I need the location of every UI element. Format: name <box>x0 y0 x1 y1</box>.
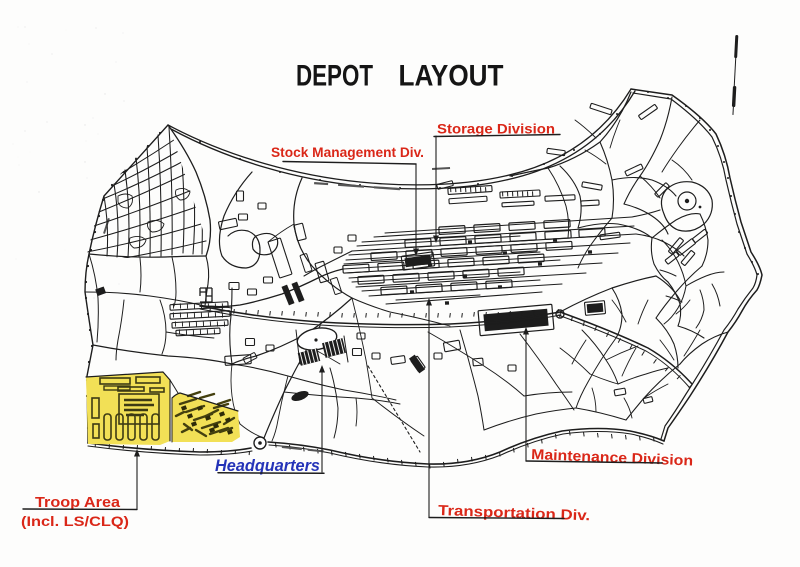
svg-text:(Incl. LS/CLQ): (Incl. LS/CLQ) <box>21 513 129 529</box>
svg-text:Storage Division: Storage Division <box>437 121 555 137</box>
svg-text:DEPOT: DEPOT <box>296 60 373 93</box>
svg-text:Maintenance Division: Maintenance Division <box>531 447 694 469</box>
svg-text:Transportation Div.: Transportation Div. <box>438 503 590 524</box>
svg-text:Stock Management Div.: Stock Management Div. <box>271 145 424 160</box>
svg-text:LAYOUT: LAYOUT <box>399 60 504 93</box>
